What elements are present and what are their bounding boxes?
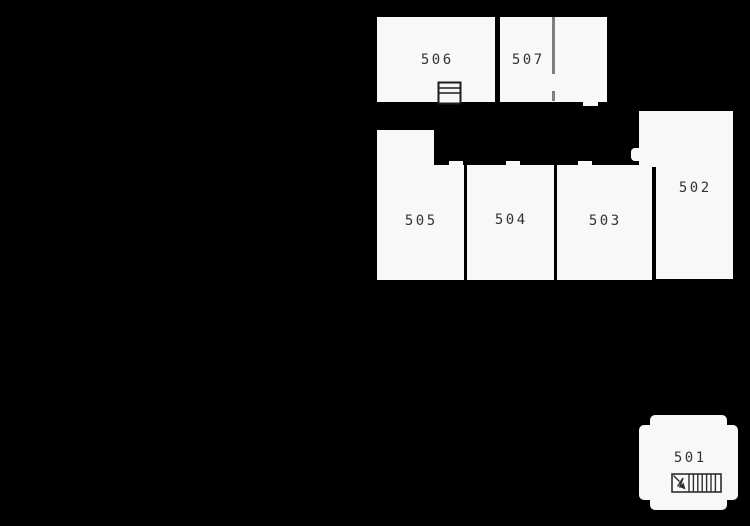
cabinet-icon: [437, 81, 462, 105]
room-501-label: 501: [671, 451, 706, 465]
partition-wall-stub: [552, 91, 555, 101]
room-506-label: 506: [418, 53, 453, 67]
door-opening: [449, 161, 463, 167]
room-505-label: 505: [402, 214, 437, 228]
room-502-label: 502: [676, 181, 711, 195]
room-507-label: 507: [509, 53, 544, 67]
door-opening: [506, 161, 520, 167]
room-502-upper: [639, 111, 733, 167]
room-505-extension: [377, 130, 434, 170]
partition-wall: [552, 17, 555, 74]
stairs-icon: [668, 470, 726, 496]
door-opening: [631, 148, 640, 161]
room-503-label: 503: [586, 214, 621, 228]
room-504-label: 504: [492, 213, 527, 227]
floorplan-canvas: 506 507 505 504 503 502 501: [0, 0, 750, 526]
door-opening: [578, 161, 592, 167]
door-opening: [583, 99, 598, 106]
